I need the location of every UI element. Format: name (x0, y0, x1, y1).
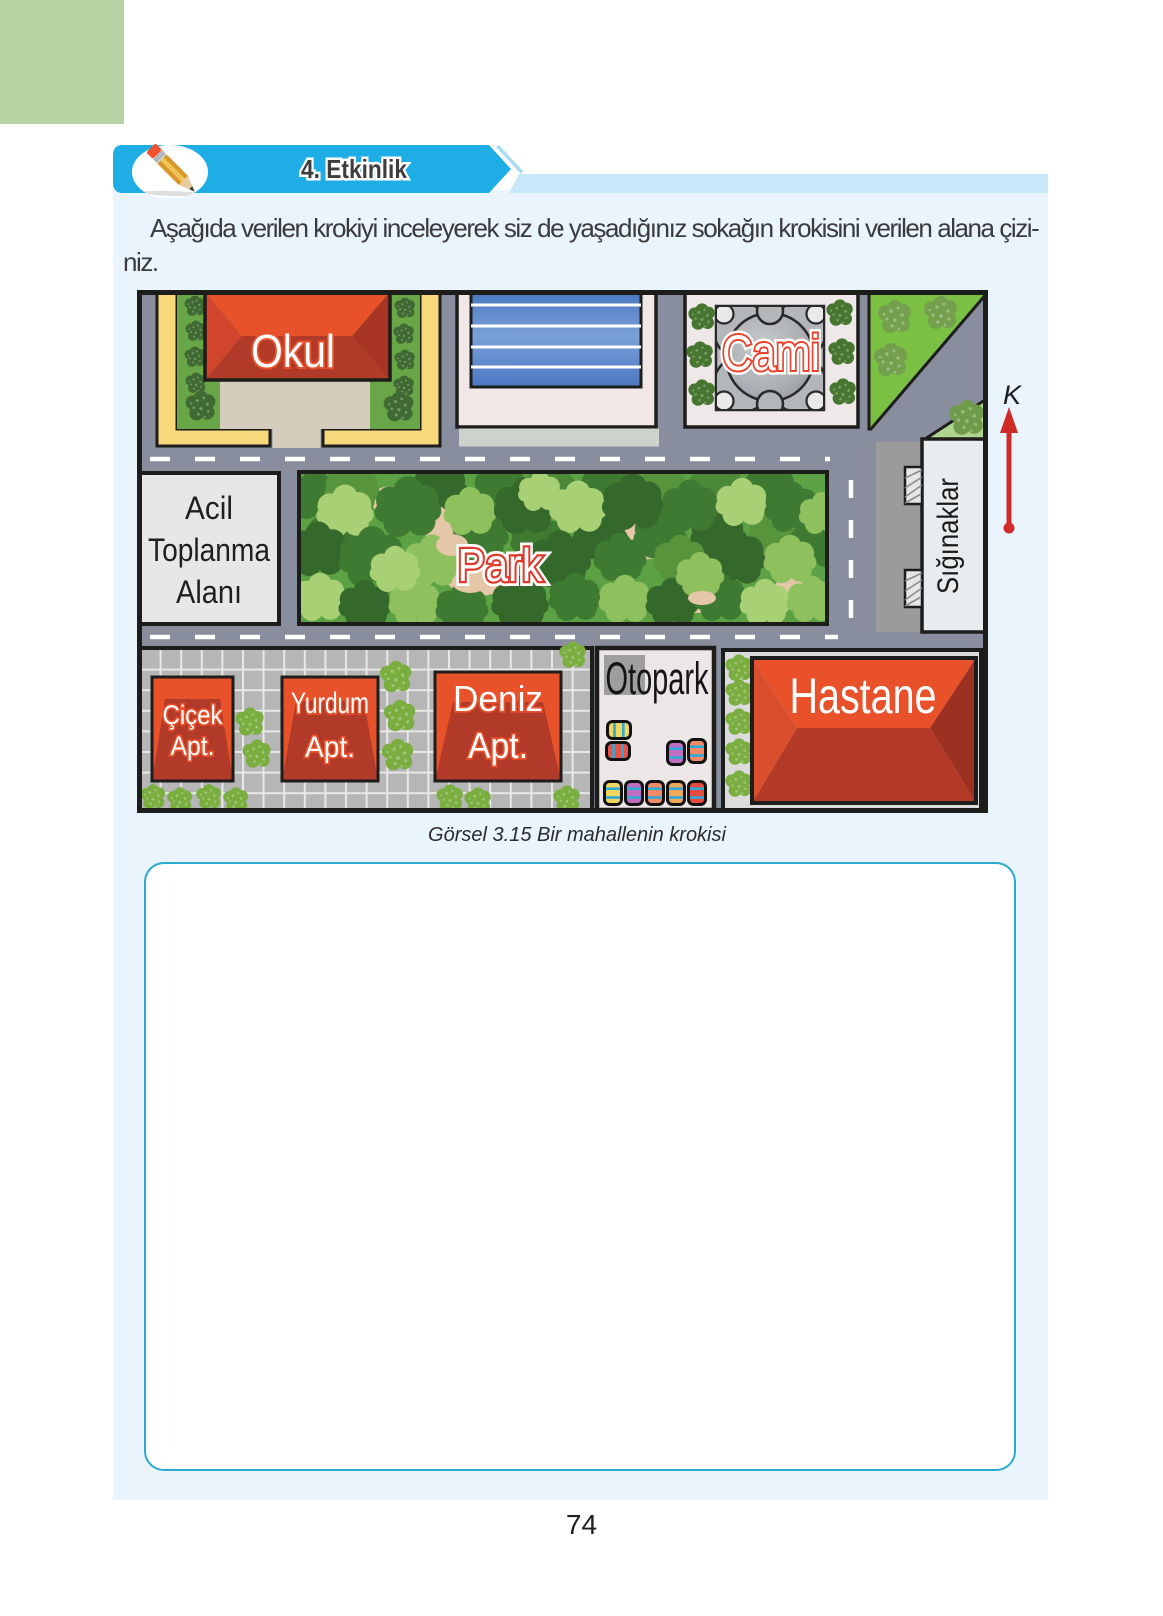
svg-text:Deniz: Deniz (453, 678, 543, 719)
svg-text:Acil: Acil (185, 490, 233, 526)
svg-text:Çiçek: Çiçek (163, 700, 223, 730)
svg-text:Yurdum: Yurdum (291, 687, 369, 720)
svg-text:Okul: Okul (251, 325, 335, 377)
svg-text:Sığınaklar: Sığınaklar (932, 478, 965, 594)
svg-text:Apt.: Apt. (305, 731, 355, 764)
svg-text:Park: Park (458, 539, 544, 591)
svg-text:Apt.: Apt. (171, 731, 215, 761)
svg-text:Toplanma: Toplanma (148, 532, 270, 568)
svg-text:4. Etkinlik: 4. Etkinlik (301, 154, 407, 184)
svg-text:Cami: Cami (722, 325, 820, 381)
svg-text:K: K (1003, 380, 1022, 410)
svg-text:Apt.: Apt. (468, 725, 528, 766)
svg-text:Alanı: Alanı (176, 574, 242, 610)
svg-text:Otopark: Otopark (606, 653, 709, 704)
svg-text:Hastane: Hastane (790, 668, 937, 724)
